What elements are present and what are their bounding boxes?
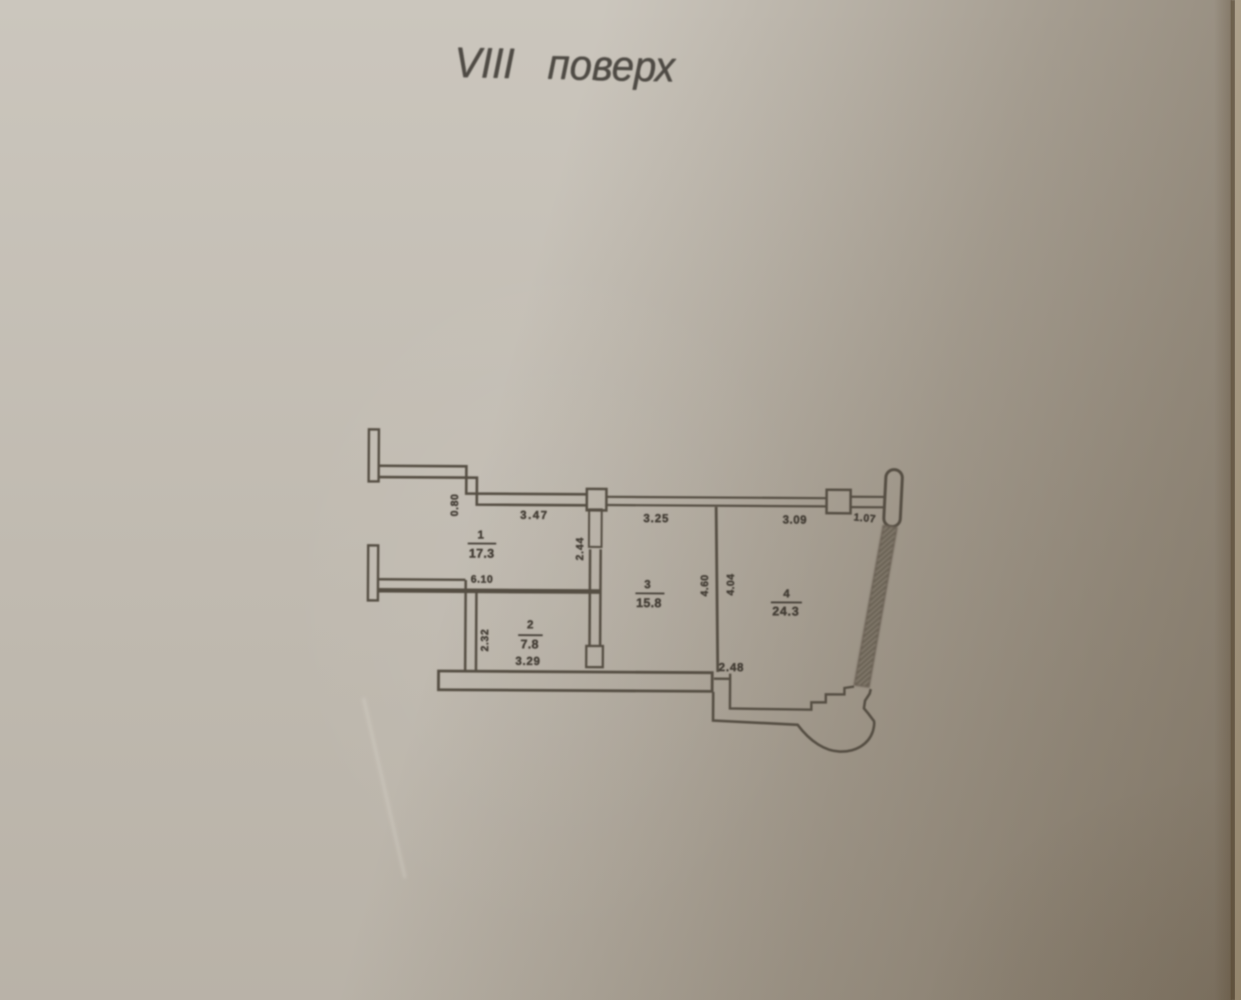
svg-text:6.10: 6.10 — [471, 574, 494, 586]
svg-text:3.09: 3.09 — [783, 514, 807, 526]
svg-text:3.29: 3.29 — [515, 656, 540, 668]
svg-text:0.80: 0.80 — [449, 493, 461, 516]
svg-text:2: 2 — [527, 619, 533, 631]
svg-text:3.25: 3.25 — [643, 513, 669, 525]
svg-text:17.3: 17.3 — [469, 546, 495, 560]
svg-text:2.48: 2.48 — [719, 662, 745, 674]
svg-text:24.3: 24.3 — [772, 604, 799, 618]
svg-text:2.44: 2.44 — [574, 537, 586, 561]
svg-text:2.32: 2.32 — [479, 629, 491, 652]
svg-text:15.8: 15.8 — [636, 596, 662, 610]
svg-text:3: 3 — [644, 579, 650, 591]
svg-text:1: 1 — [478, 530, 485, 542]
svg-text:4.60: 4.60 — [699, 574, 711, 596]
svg-text:4: 4 — [783, 588, 790, 600]
svg-text:1.07: 1.07 — [853, 511, 876, 525]
svg-text:4.04: 4.04 — [725, 574, 737, 596]
svg-text:7.8: 7.8 — [520, 637, 538, 651]
svg-text:3.47: 3.47 — [520, 510, 548, 522]
